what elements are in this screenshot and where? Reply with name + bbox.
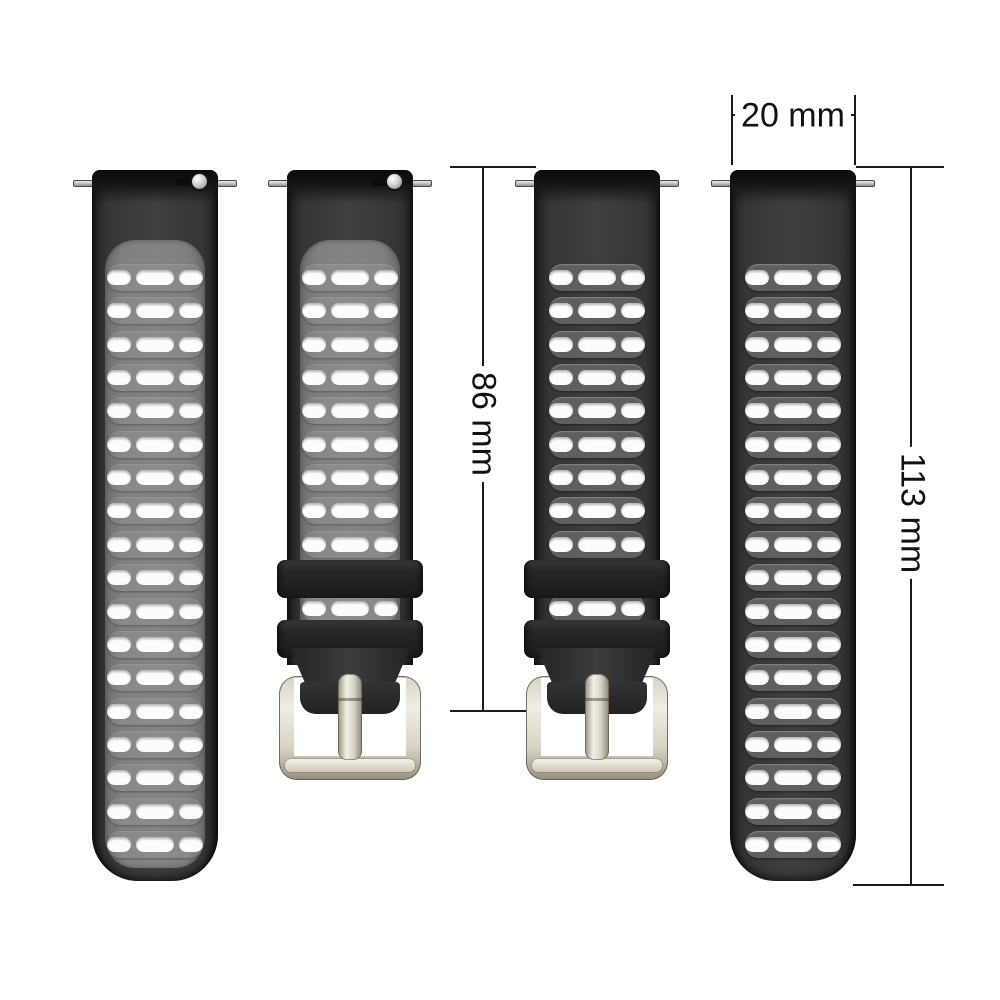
slot-row (302, 331, 398, 358)
strap-hole (817, 804, 841, 819)
strap-hole (331, 303, 369, 318)
strap-hole (817, 670, 841, 685)
strap-hole (774, 670, 812, 685)
strap-hole (745, 837, 769, 852)
spring-bar-pin (855, 180, 875, 187)
spring-bar-pin (268, 180, 288, 187)
strap-hole (745, 704, 769, 719)
strap-hole (107, 737, 131, 752)
slot-row (107, 364, 203, 391)
spring-bar-pin (73, 180, 93, 187)
slot-row (745, 264, 841, 291)
strap-hole (745, 537, 769, 552)
strap-hole (578, 437, 616, 452)
slot-row (107, 698, 203, 725)
slot-row (107, 598, 203, 625)
strap-hole (745, 337, 769, 352)
strap-hole (745, 303, 769, 318)
keeper-loop (277, 560, 423, 598)
strap-hole (774, 537, 812, 552)
spring-bar-pin (659, 180, 679, 187)
strap-hole (179, 837, 203, 852)
strap-hole (136, 537, 174, 552)
strap-hole (302, 437, 326, 452)
strap-hole (817, 403, 841, 418)
strap-hole (774, 437, 812, 452)
strap-hole (621, 437, 645, 452)
strap-hole (136, 770, 174, 785)
strap-hole (817, 303, 841, 318)
slot-row (549, 431, 645, 458)
slot-row (302, 497, 398, 524)
slot-row (302, 595, 398, 622)
slot-row (302, 431, 398, 458)
strap-hole (331, 437, 369, 452)
slot-row (745, 464, 841, 491)
strap-hole (817, 537, 841, 552)
strap-hole (549, 303, 573, 318)
strap-hole (374, 437, 398, 452)
strap-hole (578, 601, 616, 616)
dim-total-length-tick-top (856, 166, 944, 168)
slot-row (549, 464, 645, 491)
strap-hole (374, 470, 398, 485)
strap-hole (331, 337, 369, 352)
strap-hole (136, 303, 174, 318)
strap-hole (179, 770, 203, 785)
strap-hole (107, 303, 131, 318)
slot-row (745, 431, 841, 458)
slot-row (745, 397, 841, 424)
strap-hole (549, 470, 573, 485)
slot-row (745, 798, 841, 825)
buckle-prong-cap-edge (585, 698, 609, 701)
strap-hole (817, 704, 841, 719)
slot-row (745, 364, 841, 391)
strap-hole (549, 270, 573, 285)
slot-row (549, 264, 645, 291)
strap-hole (179, 270, 203, 285)
strap-hole (136, 837, 174, 852)
slot-row (745, 731, 841, 758)
strap-hole (774, 637, 812, 652)
strap-hole (107, 270, 131, 285)
strap-hole (578, 370, 616, 385)
buckle-prong (585, 674, 609, 760)
strap-hole (179, 637, 203, 652)
strap-hole (179, 470, 203, 485)
strap-hole (549, 370, 573, 385)
strap-hole (817, 637, 841, 652)
strap-hole (107, 503, 131, 518)
quick-release-knob (387, 174, 402, 189)
strap-hole (817, 604, 841, 619)
strap-hole (817, 503, 841, 518)
slot-row (745, 531, 841, 558)
slot-row (107, 631, 203, 658)
strap-hole (578, 303, 616, 318)
strap-hole (136, 437, 174, 452)
slot-row (549, 497, 645, 524)
strap-hole (374, 403, 398, 418)
spring-bar-pin (412, 180, 432, 187)
slot-row (745, 698, 841, 725)
slot-row (549, 297, 645, 324)
strap-hole (179, 570, 203, 585)
slot-row (302, 397, 398, 424)
strap-hole (578, 337, 616, 352)
dim-strap-length-tick-bottom (450, 710, 536, 712)
strap-hole (745, 570, 769, 585)
slot-row (745, 331, 841, 358)
strap-hole (549, 537, 573, 552)
strap-hole (302, 370, 326, 385)
strap-hole (774, 270, 812, 285)
strap-hole (621, 403, 645, 418)
strap-hole (107, 470, 131, 485)
strap-hole (745, 737, 769, 752)
dim-width-label: 20 mm (735, 97, 851, 134)
buckle-prong (338, 674, 362, 760)
slot-row (302, 297, 398, 324)
strap-hole (745, 503, 769, 518)
strap-lug-cap (534, 170, 660, 204)
strap-hole (578, 470, 616, 485)
buckle-bottom-bar (531, 758, 663, 773)
strap-hole (745, 770, 769, 785)
strap-hole (179, 537, 203, 552)
strap-hole (136, 403, 174, 418)
strap-hole (745, 804, 769, 819)
strap-hole (179, 370, 203, 385)
slot-row (745, 664, 841, 691)
slot-row (107, 264, 203, 291)
strap-hole (817, 370, 841, 385)
spring-bar-pin (217, 180, 237, 187)
strap-hole (817, 437, 841, 452)
strap-hole (136, 270, 174, 285)
slot-row (107, 531, 203, 558)
dim-width-extension-right (854, 95, 856, 165)
slot-row (107, 731, 203, 758)
slot-row (107, 664, 203, 691)
dim-total-length-label: 113 mm (893, 447, 930, 579)
strap-hole (302, 601, 326, 616)
strap-hole (302, 303, 326, 318)
strap-hole (817, 837, 841, 852)
strap-hole (578, 537, 616, 552)
strap-hole (136, 670, 174, 685)
slot-row (745, 564, 841, 591)
strap-hole (302, 403, 326, 418)
strap-hole (774, 804, 812, 819)
strap-hole (549, 403, 573, 418)
strap-hole (774, 503, 812, 518)
slot-row (745, 631, 841, 658)
strap-lug-cap (730, 170, 856, 204)
quick-release-knob (192, 174, 207, 189)
strap-hole (331, 601, 369, 616)
strap-hole (621, 270, 645, 285)
strap-hole (549, 601, 573, 616)
strap-hole (578, 270, 616, 285)
strap-hole (107, 403, 131, 418)
strap-hole (331, 470, 369, 485)
strap-hole (578, 403, 616, 418)
strap-hole (774, 470, 812, 485)
strap-hole (107, 437, 131, 452)
strap-hole (331, 403, 369, 418)
strap-hole (817, 770, 841, 785)
strap-hole (302, 503, 326, 518)
strap-hole (179, 303, 203, 318)
strap-hole (774, 737, 812, 752)
strap-hole (817, 270, 841, 285)
strap-hole (179, 503, 203, 518)
strap-hole (774, 704, 812, 719)
strap-hole (745, 370, 769, 385)
slot-row (745, 297, 841, 324)
strap-hole (374, 303, 398, 318)
spring-bar-pin (711, 180, 731, 187)
strap-hole (107, 770, 131, 785)
strap-hole (179, 604, 203, 619)
strap-hole (107, 637, 131, 652)
buckle-prong-cap-edge (338, 698, 362, 701)
slot-row (302, 464, 398, 491)
strap-hole (774, 570, 812, 585)
slot-row (302, 264, 398, 291)
strap-hole (774, 337, 812, 352)
strap-hole (621, 601, 645, 616)
strap-hole (302, 337, 326, 352)
strap-hole (302, 470, 326, 485)
slot-row (745, 497, 841, 524)
slot-row (107, 497, 203, 524)
strap-hole (107, 370, 131, 385)
strap-hole (549, 337, 573, 352)
strap-hole (549, 437, 573, 452)
strap-hole (136, 570, 174, 585)
strap-hole (745, 437, 769, 452)
strap-hole (136, 337, 174, 352)
strap-hole (745, 670, 769, 685)
dim-strap-length-tick-top (450, 166, 536, 168)
strap-hole (745, 637, 769, 652)
strap-hole (774, 770, 812, 785)
strap-hole (817, 570, 841, 585)
slot-row (745, 764, 841, 791)
strap-hole (136, 503, 174, 518)
slot-row (107, 331, 203, 358)
strap-hole (179, 670, 203, 685)
buckle-bottom-bar (284, 758, 416, 773)
strap-hole (374, 370, 398, 385)
strap-hole (107, 670, 131, 685)
strap-hole (107, 604, 131, 619)
strap-hole (179, 737, 203, 752)
spring-bar-pin (515, 180, 535, 187)
strap-hole (179, 804, 203, 819)
keeper-loop (524, 560, 670, 598)
dim-width-extension-left (731, 95, 733, 165)
dim-strap-length-label: 86 mm (464, 366, 501, 482)
strap-hole (136, 470, 174, 485)
strap-hole (774, 403, 812, 418)
strap-hole (331, 370, 369, 385)
slot-row (107, 564, 203, 591)
strap-hole (107, 704, 131, 719)
strap-hole (107, 837, 131, 852)
strap-hole (817, 737, 841, 752)
strap-hole (136, 804, 174, 819)
slot-row (745, 831, 841, 858)
strap-hole (745, 604, 769, 619)
strap-hole (549, 503, 573, 518)
strap-hole (621, 337, 645, 352)
strap-hole (774, 837, 812, 852)
strap-hole (331, 503, 369, 518)
strap-hole (374, 337, 398, 352)
slot-row (107, 798, 203, 825)
strap-hole (774, 604, 812, 619)
strap-hole (374, 503, 398, 518)
slot-row (107, 397, 203, 424)
strap-hole (107, 337, 131, 352)
strap-hole (302, 537, 326, 552)
strap-hole (136, 604, 174, 619)
strap-hole (179, 337, 203, 352)
slot-row (549, 397, 645, 424)
strap-hole (621, 303, 645, 318)
strap-hole (374, 537, 398, 552)
strap-hole (621, 503, 645, 518)
slot-row (549, 595, 645, 622)
strap-hole (136, 737, 174, 752)
dim-total-length-tick-bottom (853, 884, 944, 886)
slot-row (107, 431, 203, 458)
strap-hole (179, 403, 203, 418)
strap-hole (774, 370, 812, 385)
strap-hole (817, 470, 841, 485)
strap-hole (621, 370, 645, 385)
strap-hole (136, 370, 174, 385)
strap-hole (179, 437, 203, 452)
strap-hole (179, 704, 203, 719)
strap-hole (136, 704, 174, 719)
strap-hole (331, 270, 369, 285)
slot-row (107, 764, 203, 791)
strap-hole (621, 470, 645, 485)
slot-row (549, 331, 645, 358)
slot-row (745, 598, 841, 625)
slot-row (302, 364, 398, 391)
slot-row (549, 364, 645, 391)
strap-hole (374, 270, 398, 285)
strap-hole (774, 303, 812, 318)
slot-row (302, 531, 398, 558)
slot-row (107, 831, 203, 858)
strap-hole (302, 270, 326, 285)
strap-hole (578, 503, 616, 518)
strap-hole (817, 337, 841, 352)
strap-hole (136, 637, 174, 652)
strap-hole (745, 270, 769, 285)
strap-hole (331, 537, 369, 552)
strap-hole (107, 537, 131, 552)
slot-row (107, 297, 203, 324)
diagram-scene: 20 mm 86 mm 113 mm (0, 0, 1000, 1000)
slot-row (549, 531, 645, 558)
strap-hole (621, 537, 645, 552)
strap-hole (107, 570, 131, 585)
strap-hole (374, 601, 398, 616)
slot-row (107, 464, 203, 491)
strap-hole (745, 403, 769, 418)
strap-hole (107, 804, 131, 819)
strap-hole (745, 470, 769, 485)
